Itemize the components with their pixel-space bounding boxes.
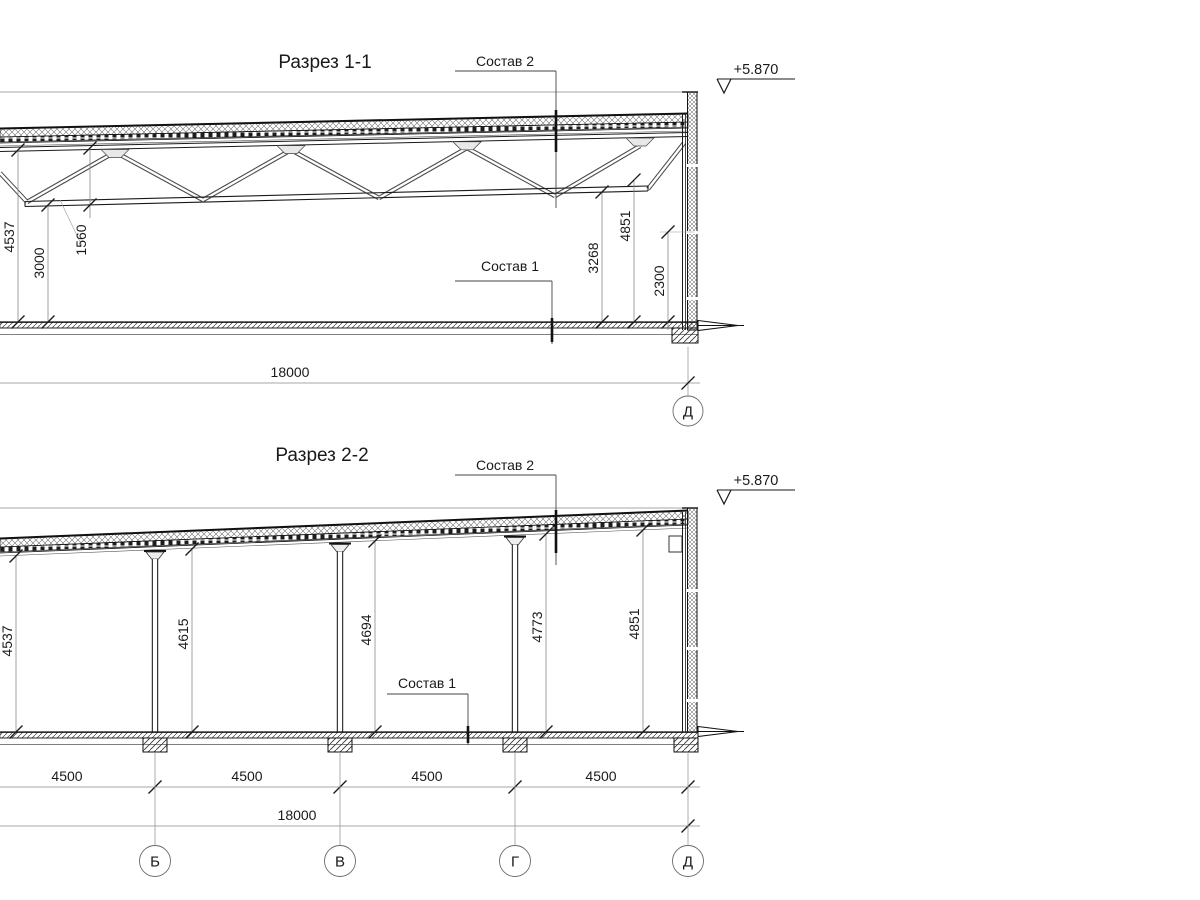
dim-2300: 2300 — [651, 265, 667, 296]
dim-18000: 18000 — [278, 807, 317, 823]
right-wall — [682, 508, 698, 732]
floor-slab — [0, 727, 744, 753]
section-1-1: Разрез 1-1 +5.870 — [0, 52, 795, 426]
grid-letter: В — [335, 854, 345, 871]
dim-bay-4: 4500 — [585, 768, 616, 784]
grid-bubble-d: Д — [673, 396, 703, 426]
dimension-span: 18000 — [0, 807, 700, 833]
columns — [144, 536, 682, 732]
dim-4537: 4537 — [0, 625, 15, 656]
section-2-2: Разрез 2-2 +5.870 — [0, 445, 795, 877]
column — [504, 537, 526, 733]
grid-letter: Д — [683, 854, 693, 871]
grid-bubble-d: Д — [673, 846, 704, 877]
dim-bay-3: 4500 — [411, 768, 442, 784]
foundation-blocks — [143, 738, 698, 752]
dim-4615: 4615 — [175, 618, 191, 649]
drawing-sheet: Разрез 1-1 +5.870 — [0, 0, 1200, 900]
dimensions-vertical: 4537 4615 4694 4773 4851 — [0, 524, 650, 739]
dimension-span: 18000 — [0, 347, 700, 396]
dim-4851: 4851 — [626, 608, 642, 639]
section-2-title: Разрез 2-2 — [275, 445, 368, 466]
roof-package — [0, 114, 688, 147]
dim-3268: 3268 — [585, 242, 601, 273]
elevation-mark: +5.870 — [717, 473, 795, 504]
callout-sostav2-label: Состав 2 — [476, 53, 534, 69]
column — [144, 551, 166, 732]
dim-3000: 3000 — [31, 247, 47, 278]
dim-18000: 18000 — [271, 364, 310, 380]
callout-sostav2-label: Состав 2 — [476, 457, 534, 473]
grid-bubble-g: Г — [500, 846, 531, 877]
foundation-block — [672, 328, 698, 343]
sections-drawing: Разрез 1-1 +5.870 — [0, 0, 1200, 900]
grid-bubble-v: В — [325, 846, 356, 877]
dimensions-bays: 4500 4500 4500 4500 — [0, 768, 700, 794]
callout-sostav1: Состав 1 — [455, 258, 552, 344]
callout-sostav1-label: Состав 1 — [481, 258, 539, 274]
grid-letter: Г — [511, 854, 519, 871]
dim-4694: 4694 — [358, 614, 374, 645]
grid-bubble-b: Б — [140, 846, 171, 877]
elevation-value: +5.870 — [734, 473, 779, 489]
dim-4537: 4537 — [1, 221, 17, 252]
beam-end — [669, 536, 682, 552]
grid-letter: Б — [150, 854, 160, 871]
dim-bay-1: 4500 — [51, 768, 82, 784]
callout-sostav2: Состав 2 — [455, 457, 556, 565]
section-1-title: Разрез 1-1 — [278, 52, 371, 73]
dim-bay-2: 4500 — [231, 768, 262, 784]
dim-4773: 4773 — [529, 611, 545, 642]
callout-sostav1-label: Состав 1 — [398, 675, 456, 691]
dim-4851: 4851 — [617, 210, 633, 241]
elevation-mark: +5.870 — [717, 62, 795, 93]
dim-1560: 1560 — [73, 224, 89, 255]
elevation-value: +5.870 — [734, 62, 779, 78]
grid-letter: Д — [683, 404, 693, 421]
dimensions-vertical: 4537 3000 1560 3268 4851 2300 — [1, 142, 694, 331]
column — [329, 544, 351, 733]
